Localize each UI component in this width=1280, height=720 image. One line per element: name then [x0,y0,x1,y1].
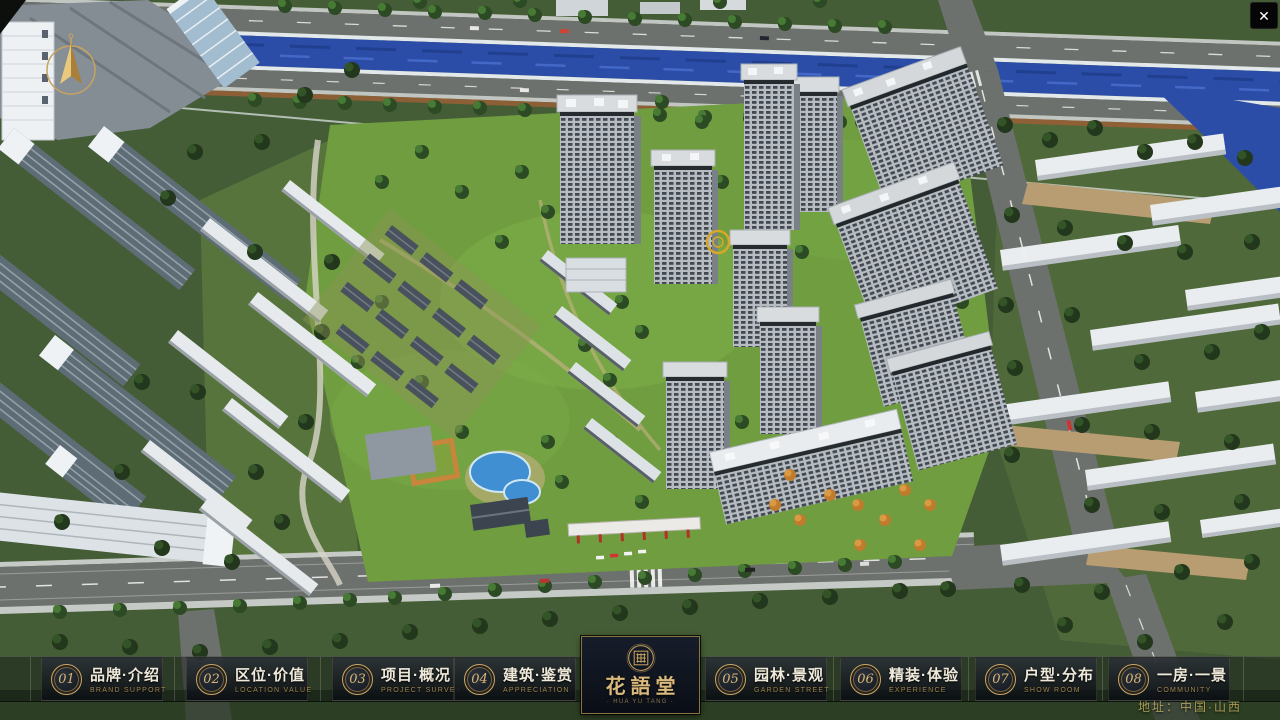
nav-item-number: 05 [722,672,739,687]
nav-item-number-badge: 04 [464,664,495,695]
nav-item-title-cn: 一房·一景 [1157,664,1227,685]
nav-item-title-cn: 区位·价值 [235,664,307,685]
logo-tagline: · HUA YU TANG · [607,699,674,705]
nav-item-subtitle-en: EXPERIENCE [889,687,959,694]
nav-item-subtitle-en: PROJECT SURVEY [381,687,453,694]
nav-item-labels: 精装·体验EXPERIENCE [889,664,959,694]
nav-item-brand[interactable]: 01 品牌·介绍BRAND SUPPORT [41,657,163,701]
nav-divider [968,657,969,701]
nav-item-title-cn: 建筑·鉴赏 [503,664,573,685]
nav-item-labels: 品牌·介绍BRAND SUPPORT [90,664,162,694]
nav-item-title-cn: 户型·分布 [1024,664,1094,685]
nav-item-number-badge: 05 [715,664,746,695]
nav-item-title-cn: 园林·景观 [754,664,826,685]
nav-item-architecture[interactable]: 04 建筑·鉴赏APPRECIATION [454,657,576,701]
nav-divider [1243,657,1244,701]
nav-item-labels: 一房·一景COMMUNITY [1157,664,1227,694]
compass-icon [40,30,102,100]
nav-item-floorplan[interactable]: 07 户型·分布SHOW ROOM [975,657,1097,701]
nav-item-number-badge: 07 [985,664,1016,695]
address-text: 地址：中国·山西 [1138,698,1242,715]
presentation-window: ✕ 01 品牌·介绍BRAND SUPPORT 02 区位·价值LOCATION… [0,0,1280,720]
nav-item-labels: 项目·概况PROJECT SURVEY [381,664,453,694]
nav-item-number-badge: 06 [850,664,881,695]
nav-item-subtitle-en: BRAND SUPPORT [90,687,162,694]
nav-item-subtitle-en: LOCATION VALUE [235,687,307,694]
nav-item-number-badge: 01 [51,664,82,695]
nav-divider [320,657,321,701]
nav-item-community[interactable]: 08 一房·一景COMMUNITY [1108,657,1230,701]
nav-item-labels: 建筑·鉴赏APPRECIATION [503,664,573,694]
nav-item-subtitle-en: GARDEN STREET [754,687,826,694]
logo-title: 花語堂 [601,676,681,696]
map-viewport-3d[interactable] [0,0,1280,720]
nav-item-number-badge: 08 [1118,664,1149,695]
close-button[interactable]: ✕ [1250,2,1278,29]
nav-item-interior[interactable]: 06 精装·体验EXPERIENCE [840,657,962,701]
nav-item-labels: 园林·景观GARDEN STREET [754,664,826,694]
nav-item-title-cn: 项目·概况 [381,664,453,685]
nav-item-number: 02 [203,672,220,687]
nav-item-title-cn: 品牌·介绍 [90,664,162,685]
seal-emblem-icon [624,641,658,675]
nav-item-number: 08 [1125,672,1142,687]
nav-divider [1102,657,1103,701]
nav-divider [174,657,175,701]
logo-panel[interactable]: 花語堂 · HUA YU TANG · [581,636,700,714]
nav-item-location[interactable]: 02 区位·价值LOCATION VALUE [186,657,308,701]
nav-item-garden[interactable]: 05 园林·景观GARDEN STREET [705,657,827,701]
nav-item-labels: 区位·价值LOCATION VALUE [235,664,307,694]
close-icon: ✕ [1258,9,1270,23]
nav-item-number: 03 [349,672,366,687]
nav-divider [30,657,31,701]
nav-item-number: 06 [857,672,874,687]
nav-item-subtitle-en: APPRECIATION [503,687,573,694]
nav-item-subtitle-en: SHOW ROOM [1024,687,1094,694]
nav-item-number-badge: 03 [342,664,373,695]
nav-item-project[interactable]: 03 项目·概况PROJECT SURVEY [332,657,454,701]
nav-item-subtitle-en: COMMUNITY [1157,687,1227,694]
nav-item-number: 01 [58,672,75,687]
nav-item-number: 04 [471,672,488,687]
nav-item-title-cn: 精装·体验 [889,664,959,685]
nav-divider [833,657,834,701]
nav-item-number-badge: 02 [196,664,227,695]
nav-item-number: 07 [992,672,1009,687]
nav-item-labels: 户型·分布SHOW ROOM [1024,664,1094,694]
